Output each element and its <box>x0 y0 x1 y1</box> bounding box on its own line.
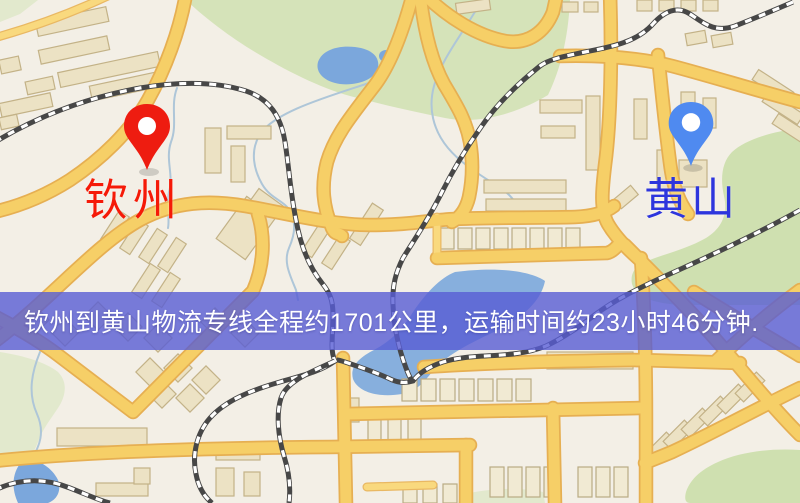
route-info-text: 钦州到黄山物流专线全程约1701公里，运输时间约23小时46分钟. <box>0 303 759 339</box>
map-screenshot: 钦州 黄山 钦州到黄山物流专线全程约1701公里，运输时间约23小时46分钟. <box>0 0 800 503</box>
origin-city-label: 钦州 <box>84 179 182 223</box>
route-info-banner: 钦州到黄山物流专线全程约1701公里，运输时间约23小时46分钟. <box>0 292 800 350</box>
destination-city-label: 黄山 <box>644 178 738 222</box>
map-canvas <box>0 0 800 503</box>
